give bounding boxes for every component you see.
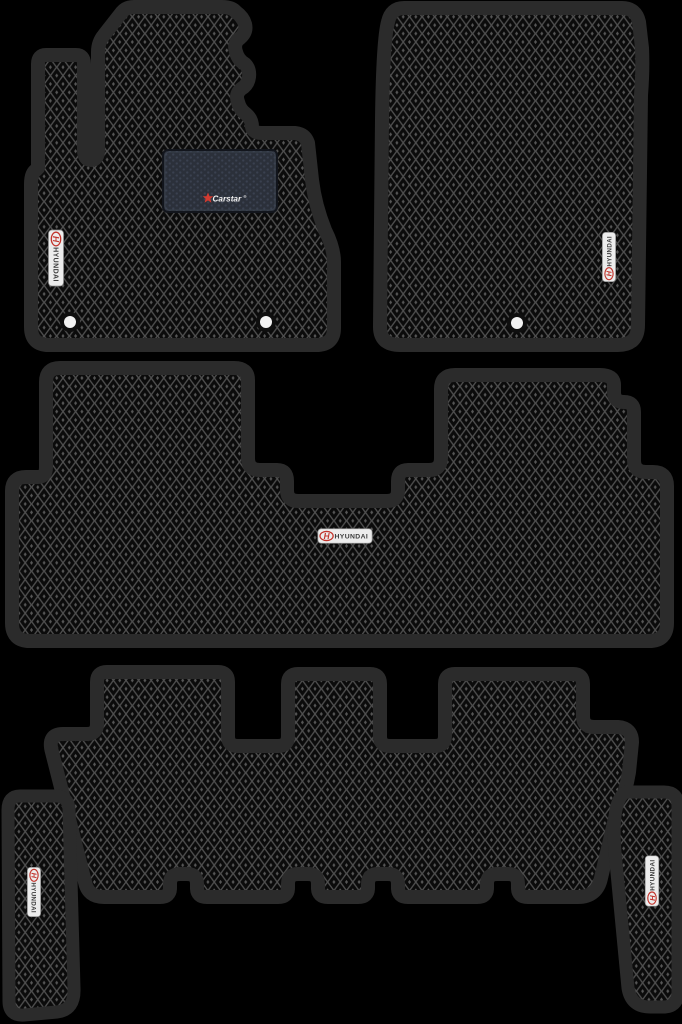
floor-mats-illustration: H HYUNDAI Carstar ®	[0, 0, 682, 1024]
right-rear-side-mat	[614, 792, 678, 1007]
front-passenger-mat-shape	[380, 8, 642, 345]
second-row-mat-shape	[12, 368, 667, 641]
fastener-hole-passenger	[507, 313, 527, 333]
hyundai-badge-driver-mat	[49, 230, 64, 286]
third-row-mat	[51, 672, 632, 897]
carstar-logo-text: Carstar ®	[213, 194, 247, 204]
second-row-mat	[12, 368, 667, 641]
hyundai-badge-second-row-mat	[318, 529, 372, 544]
carstar-wordmark: Carstar	[213, 195, 242, 204]
hyundai-badge-passenger-mat	[602, 232, 615, 281]
fastener-hole-driver-left	[60, 312, 80, 332]
front-driver-mat: Carstar ®	[31, 7, 334, 345]
left-rear-side-mat-shape	[8, 796, 74, 1015]
hyundai-badge-left-side-mat	[27, 867, 40, 916]
registered-trademark-symbol: ®	[243, 194, 246, 199]
hyundai-badge-right-side-mat	[645, 856, 659, 906]
front-passenger-mat	[380, 8, 642, 345]
third-row-mat-shape	[51, 672, 632, 897]
fastener-hole-driver-right	[256, 312, 276, 332]
product-image-floor-mats: H HYUNDAI Carstar ®	[0, 0, 682, 1024]
left-rear-side-mat	[8, 796, 74, 1015]
carstar-heel-pad: Carstar ®	[163, 150, 277, 212]
